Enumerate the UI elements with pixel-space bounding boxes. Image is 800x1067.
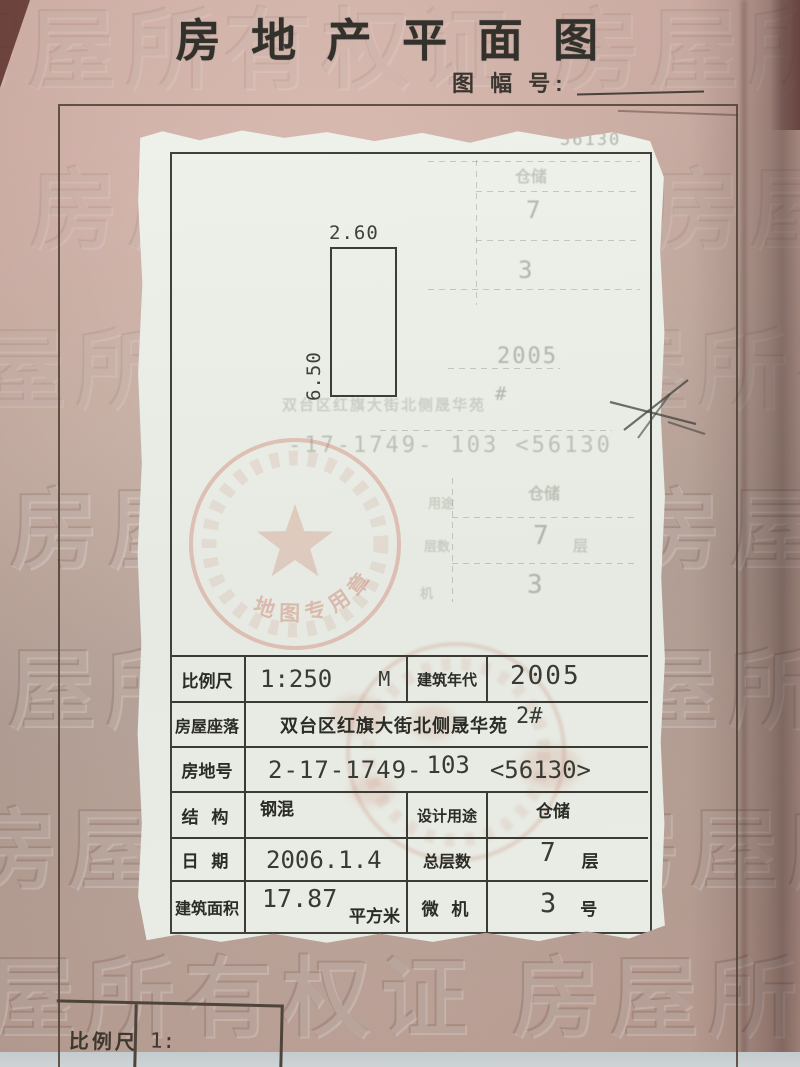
ghost-grid-line — [428, 289, 640, 290]
parcel-outline — [330, 247, 397, 397]
building-number: 2# — [516, 704, 543, 729]
page-crease — [742, 0, 746, 1067]
structure-label: 结 构 — [170, 793, 246, 837]
ghost-use: 仓储 — [515, 163, 547, 187]
seal-star-icon — [257, 504, 333, 576]
ghost-floors-value: 7 — [533, 521, 549, 551]
table-row: 日 期 2006.1.4 总层数 7 层 — [170, 839, 648, 882]
red-seal-stamp: 地图专用章 — [178, 432, 413, 662]
ghost-grid-line — [428, 161, 640, 162]
scale-unit: M — [378, 667, 390, 691]
location-value: 双台区红旗大街北侧晟华苑 2# — [246, 703, 648, 746]
build-year-number: 2005 — [510, 661, 581, 691]
ghost-grid-line — [476, 160, 477, 305]
ghost-micro-value: 3 — [527, 570, 543, 600]
design-use-text: 仓储 — [536, 797, 570, 822]
ghost-use-label: 用途 — [428, 493, 454, 512]
ghost-grid-line — [452, 517, 638, 518]
ghost-micro-label: 机 — [420, 583, 433, 602]
pencil-x-mark — [608, 372, 708, 446]
parcel-unit-number: 103 — [427, 751, 470, 779]
computer-unit: 号 — [580, 895, 597, 920]
ghost-grid-line — [476, 240, 640, 241]
design-use-value: 仓储 — [488, 793, 648, 837]
ghost-use-value: 仓储 — [528, 480, 560, 504]
parcel-label: 房地号 — [170, 748, 246, 791]
area-value: 17.87 平方米 — [246, 882, 408, 932]
table-row: 房屋座落 双台区红旗大街北侧晟华苑 2# — [170, 703, 648, 748]
ghost-floors: 7 — [526, 196, 540, 224]
ghost-grid-line — [476, 191, 640, 192]
property-info-table: 比例尺 1:250 M 建筑年代 2005 房屋座落 双台区红旗大街北侧晟华苑 … — [170, 655, 648, 932]
ghost-year: 2005 — [497, 344, 558, 369]
area-number: 17.87 — [262, 884, 337, 913]
area-unit: 平方米 — [349, 902, 400, 927]
ghost-address: 双台区红旗大街北侧晟华苑 — [282, 394, 486, 415]
parcel-code: <56130> — [490, 756, 591, 784]
dimension-height: 6.50 — [303, 339, 325, 401]
footer-scale-label: 比例尺 — [69, 1025, 139, 1056]
ghost-grid-line — [380, 430, 612, 431]
build-year-label: 建筑年代 — [408, 657, 488, 701]
footer-scale-value: 1: — [150, 1029, 176, 1054]
computer-number: 3 — [540, 888, 556, 919]
total-floors-value: 7 层 — [488, 839, 648, 880]
table-row: 结 构 钢混 设计用途 仓储 — [170, 793, 648, 839]
footer-scale-table: 比例尺 1: — [55, 999, 284, 1067]
computer-value: 3 号 — [488, 882, 648, 932]
table-row: 建筑面积 17.87 平方米 微 机 3 号 — [170, 882, 648, 932]
ghost-hash: # — [495, 383, 506, 405]
table-row: 比例尺 1:250 M 建筑年代 2005 — [170, 657, 648, 703]
date-label: 日 期 — [170, 839, 246, 880]
structure-value: 钢混 — [246, 793, 408, 837]
computer-label: 微 机 — [408, 882, 488, 932]
scale-number: 1:250 — [260, 665, 332, 693]
location-label: 房屋座落 — [170, 703, 246, 746]
ghost-micro: 3 — [518, 256, 532, 284]
date-text: 2006.1.4 — [266, 846, 382, 874]
pasted-plan-sheet: 2.60 6.50 56130 仓储 7 3 2005 双台区红旗大街北侧晟华苑… — [136, 128, 666, 946]
sheet-number-label: 图 幅 号: — [452, 66, 568, 98]
parcel-base: 2-17-1749- — [268, 756, 423, 784]
total-floors-label: 总层数 — [408, 839, 488, 880]
date-value: 2006.1.4 — [246, 839, 408, 880]
ghost-grid-line — [452, 563, 638, 564]
scale-label: 比例尺 — [170, 657, 246, 701]
build-year-value: 2005 — [488, 657, 648, 701]
floors-unit: 层 — [582, 847, 599, 872]
ghost-floors-unit: 层 — [573, 535, 588, 556]
photographed-certificate-page: 房屋所有权证 房屋所有权证 房屋所有权证 房屋所有权证 房屋所有权证 房屋所有权… — [0, 0, 800, 1067]
area-label: 建筑面积 — [170, 882, 246, 932]
table-row: 房地号 2-17-1749- 103 <56130> — [170, 748, 648, 793]
scale-value: 1:250 M — [246, 657, 408, 701]
page-title: 房 地 产 平 面 图 — [176, 4, 608, 69]
design-use-label: 设计用途 — [408, 793, 488, 837]
location-text: 双台区红旗大街北侧晟华苑 — [280, 712, 508, 738]
ghost-grid-line — [448, 368, 560, 369]
floors-number: 7 — [540, 838, 556, 868]
dimension-width: 2.60 — [329, 222, 379, 244]
ghost-floors-label: 层数 — [424, 536, 450, 555]
structure-text: 钢混 — [260, 795, 294, 820]
parcel-value: 2-17-1749- 103 <56130> — [246, 748, 648, 791]
